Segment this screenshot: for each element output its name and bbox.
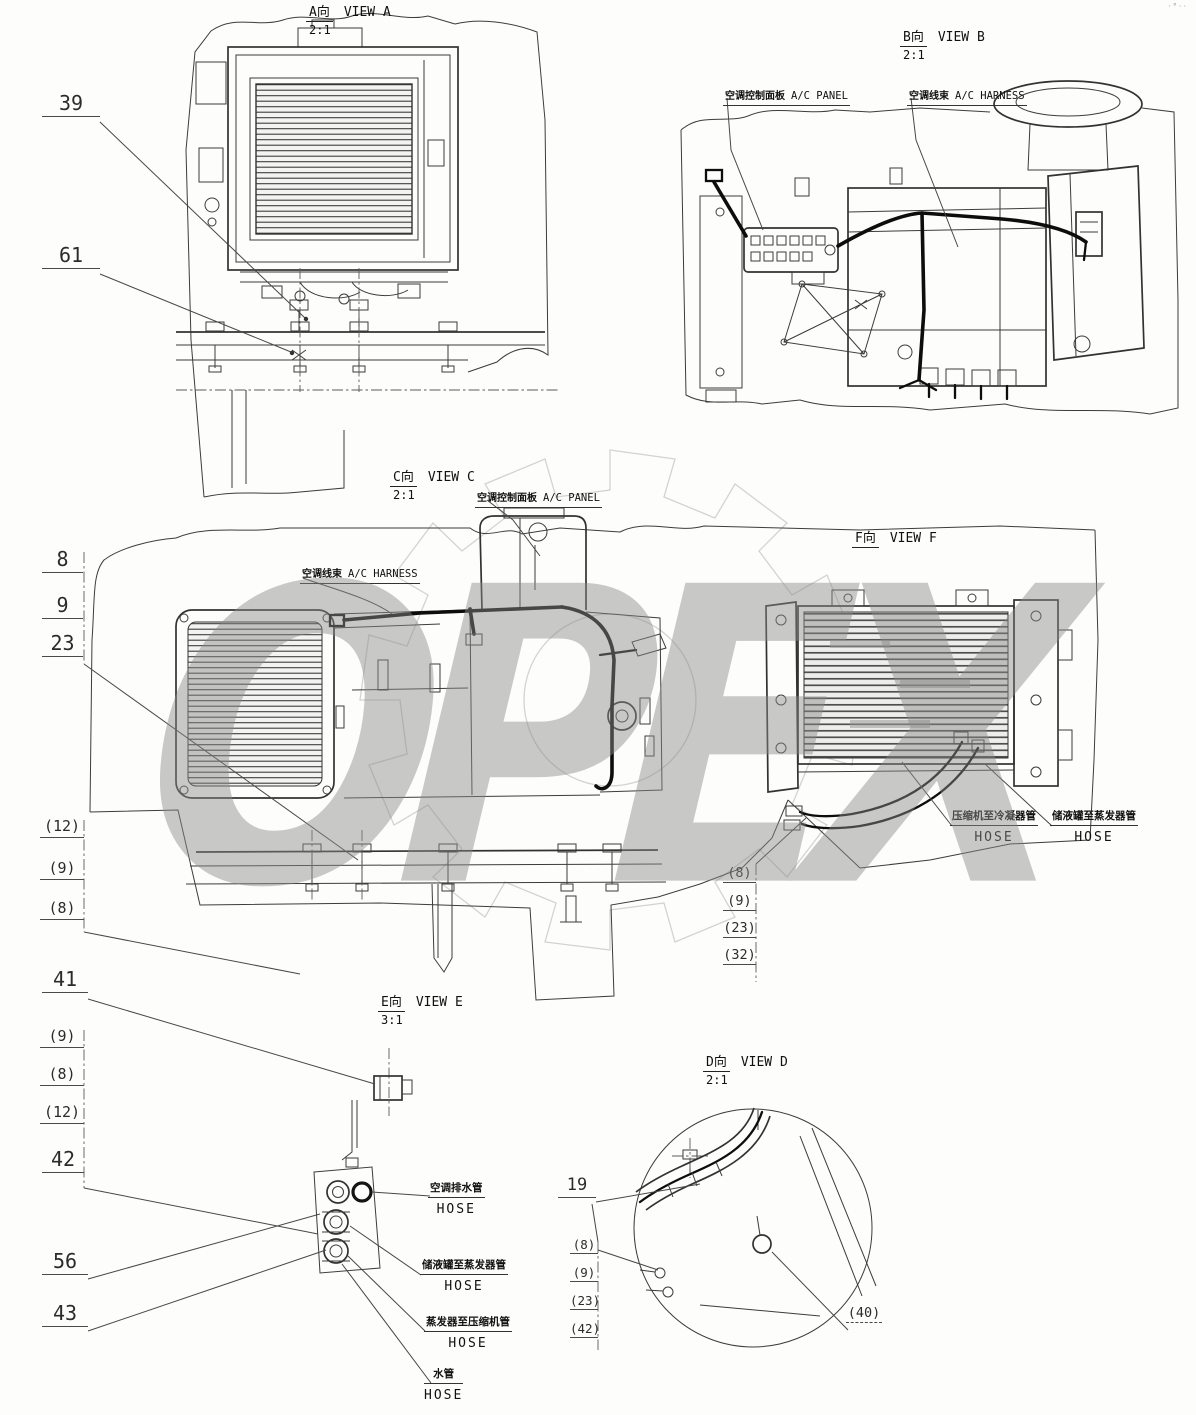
callout-32-viewf: (32)	[723, 948, 756, 965]
view-a-name: VIEW A	[344, 5, 391, 20]
label-c-ac-harness: 空调线束A/C HARNESS	[300, 562, 420, 584]
hose-evaporator-compressor-en: HOSE	[448, 1336, 487, 1351]
label-b-ac-harness: 空调线束A/C HARNESS	[907, 84, 1027, 106]
label-b-ac-panel: 空调控制面板A/C PANEL	[723, 84, 850, 106]
callout-9-viewc: 9	[42, 594, 83, 619]
callout-23-viewf: (23)	[723, 921, 756, 938]
view-e-header: E向VIEW E 3:1	[378, 991, 463, 1027]
callout-9-viewf: (9)	[723, 894, 756, 911]
callout-8-viewd: (8)	[570, 1238, 598, 1254]
callout-12-viewe: (12)	[40, 1104, 84, 1124]
callout-61: 61	[42, 244, 100, 269]
label-c-ac-harness-zh: 空调线束	[302, 569, 342, 580]
view-d-header: D向VIEW D 2:1	[703, 1051, 788, 1087]
hose-receiver-evaporator-e-en: HOSE	[444, 1279, 483, 1294]
hose-ac-drain-zh: 空调排水管	[428, 1180, 485, 1198]
view-d-tag: D向	[703, 1051, 730, 1072]
view-f-name: VIEW F	[890, 531, 937, 546]
view-c-name: VIEW C	[428, 470, 475, 485]
callout-19: 19	[558, 1176, 596, 1198]
hose-water-en: HOSE	[424, 1388, 463, 1403]
view-e-scale: 3:1	[378, 1013, 463, 1027]
hose-label-evaporator-compressor: 蒸发器至压缩机管 HOSE	[424, 1314, 512, 1351]
callout-9b-viewc: (9)	[40, 860, 84, 880]
callout-12-viewc: (12)	[40, 818, 84, 838]
view-b-drawing	[681, 81, 1178, 414]
drawing-sheet: OPEX ·°·· A向VIEW A 2:1 B向VIEW B 2:1 C向VI…	[0, 0, 1196, 1415]
hose-label-receiver-evaporator-e: 储液罐至蒸发器管 HOSE	[420, 1257, 508, 1294]
hose-water-zh: 水管	[424, 1366, 463, 1384]
hose-label-ac-drain: 空调排水管 HOSE	[428, 1180, 485, 1217]
callout-56: 56	[42, 1250, 88, 1275]
callout-8b-viewc: (8)	[40, 900, 84, 920]
callout-23-viewd: (23)	[570, 1294, 598, 1310]
view-f-tag: F向	[852, 527, 879, 548]
hose-label-receiver-evaporator-f: 储液罐至蒸发器管 HOSE	[1050, 808, 1138, 845]
view-d-scale: 2:1	[703, 1073, 788, 1087]
hose-evaporator-compressor-zh: 蒸发器至压缩机管	[424, 1314, 512, 1332]
line-art-canvas	[0, 0, 1196, 1415]
view-f-header: F向VIEW F	[852, 527, 937, 548]
view-e-tag: E向	[378, 991, 405, 1012]
hose-receiver-evaporator-f-en: HOSE	[1074, 830, 1113, 845]
view-a-scale: 2:1	[306, 23, 391, 37]
view-b-name: VIEW B	[938, 30, 985, 45]
view-b-scale: 2:1	[900, 48, 985, 62]
view-e-drawing	[84, 999, 431, 1383]
label-b-ac-harness-en: A/C HARNESS	[955, 90, 1025, 102]
callout-42-viewd: (42)	[570, 1322, 598, 1338]
view-d-drawing	[592, 1108, 876, 1350]
label-c-ac-harness-en: A/C HARNESS	[348, 568, 418, 580]
callout-23-viewc: 23	[42, 632, 83, 657]
hose-ac-drain-en: HOSE	[437, 1202, 476, 1217]
view-f-drawing	[756, 590, 1072, 982]
view-a-tag: A向	[306, 1, 333, 22]
callout-9-viewd: (9)	[570, 1266, 598, 1282]
hose-label-compressor-condenser: 压缩机至冷凝器管 HOSE	[950, 808, 1038, 845]
callout-40: (40)	[846, 1306, 882, 1323]
label-c-ac-panel-en: A/C PANEL	[543, 492, 600, 504]
view-c-tag: C向	[390, 466, 417, 487]
label-b-ac-panel-zh: 空调控制面板	[725, 91, 785, 102]
view-c-header: C向VIEW C 2:1	[390, 466, 475, 502]
label-b-ac-harness-zh: 空调线束	[909, 91, 949, 102]
view-a-header: A向VIEW A 2:1	[306, 1, 391, 37]
callout-39: 39	[42, 92, 100, 117]
callout-43: 43	[42, 1302, 88, 1327]
view-a-drawing	[100, 13, 560, 497]
callout-8-viewe: (8)	[40, 1066, 84, 1086]
callout-8-viewf: (8)	[723, 866, 756, 883]
hose-compressor-condenser-en: HOSE	[974, 830, 1013, 845]
callout-8-viewc: 8	[42, 548, 83, 573]
label-c-ac-panel-zh: 空调控制面板	[477, 493, 537, 504]
corner-mark: ·°··	[1168, 2, 1188, 11]
hose-compressor-condenser-zh: 压缩机至冷凝器管	[950, 808, 1038, 826]
callout-42: 42	[42, 1148, 84, 1173]
label-b-ac-panel-en: A/C PANEL	[791, 90, 848, 102]
hose-label-water: 水管 HOSE	[424, 1366, 463, 1403]
view-b-header: B向VIEW B 2:1	[900, 26, 985, 62]
view-e-name: VIEW E	[416, 995, 463, 1010]
hose-receiver-evaporator-f-zh: 储液罐至蒸发器管	[1050, 808, 1138, 826]
callout-9-viewe: (9)	[40, 1028, 84, 1048]
view-d-name: VIEW D	[741, 1055, 788, 1070]
callout-41: 41	[42, 968, 88, 993]
view-c-scale: 2:1	[390, 488, 475, 502]
gear-watermark	[360, 450, 860, 950]
view-b-tag: B向	[900, 26, 927, 47]
label-c-ac-panel: 空调控制面板A/C PANEL	[475, 486, 602, 508]
hose-receiver-evaporator-e-zh: 储液罐至蒸发器管	[420, 1257, 508, 1275]
